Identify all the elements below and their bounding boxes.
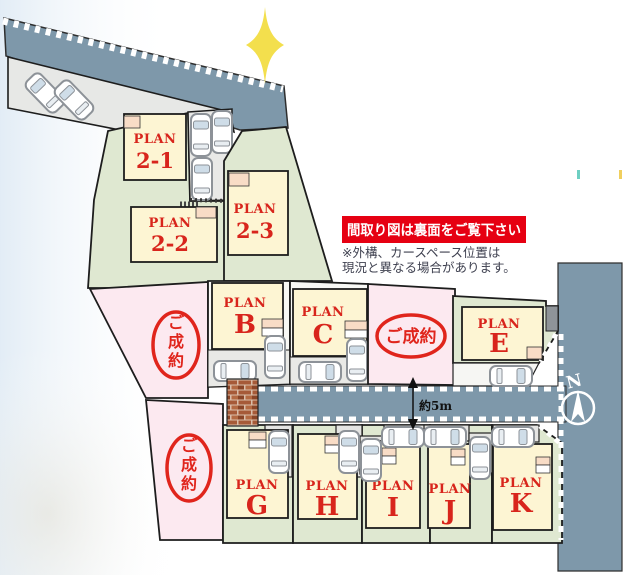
- car-icon: [214, 361, 256, 381]
- entrance-box: [527, 347, 542, 359]
- car-icon: [361, 439, 381, 481]
- building-plan-2-1: PLAN 2-1: [124, 114, 186, 180]
- car-icon: [470, 437, 490, 479]
- entrance-box: [262, 319, 283, 328]
- entrance-box: [196, 207, 216, 218]
- note-line-1: ※外構、カースペース位置は: [342, 245, 500, 260]
- horizontal-road: [256, 386, 566, 422]
- label-plan-c: PLAN: [302, 305, 345, 320]
- label-id-g: G: [246, 491, 268, 521]
- car-icon: [212, 111, 232, 153]
- building-plan-k: PLAN K: [493, 444, 552, 530]
- label-id-k: K: [510, 489, 534, 519]
- label-plan-j: PLAN: [429, 482, 472, 497]
- entrance-box: [536, 465, 550, 473]
- label-id-i: I: [387, 493, 399, 523]
- sold-lot-3: ご成約: [146, 400, 223, 540]
- car-icon: [269, 431, 289, 473]
- car-icon: [492, 427, 534, 447]
- lot-plan-c: PLAN C: [290, 281, 368, 384]
- label-id-j: J: [442, 496, 456, 526]
- entrance-box: [382, 456, 396, 464]
- note-line-2: 現況と異なる場合があります。: [342, 260, 516, 275]
- car-icon: [347, 339, 367, 381]
- entrance-box: [124, 116, 140, 128]
- label-plan-b: PLAN: [224, 296, 267, 311]
- label-plan-2-2: PLAN: [149, 216, 192, 231]
- lot-plan-b: PLAN B: [208, 281, 290, 387]
- stray-mark-teal: [577, 170, 580, 179]
- label-plan-2-1: PLAN: [134, 132, 177, 147]
- banner-text: 間取り図は裏面をご覧下さい: [347, 222, 521, 239]
- entrance-box: [249, 432, 266, 440]
- entrance-box: [451, 449, 465, 457]
- sold-stamp-2: ご成約: [386, 326, 437, 347]
- site-plan-drawing: PLAN 2-1 PLAN 2-2 PLAN 2-3 ご成約 PLAN B: [0, 0, 640, 575]
- label-id-2-1: 2-1: [136, 148, 174, 173]
- sold-stamp-1: ご成約: [168, 313, 184, 370]
- car-icon: [424, 427, 466, 447]
- car-icon: [265, 336, 285, 378]
- lot-plan-e: PLAN E: [453, 296, 558, 386]
- label-id-2-3: 2-3: [236, 218, 274, 243]
- banner: 間取り図は裏面をご覧下さい: [342, 216, 526, 243]
- entrance-box: [345, 330, 367, 338]
- sold-stamp-3: ご成約: [181, 436, 197, 493]
- road-width-label: 約5m: [419, 398, 452, 413]
- entrance-box: [229, 173, 249, 186]
- entrance-box: [451, 457, 465, 465]
- building-plan-j: PLAN J: [428, 444, 471, 528]
- label-id-2-2: 2-2: [151, 231, 189, 256]
- car-icon: [299, 362, 341, 382]
- site-plan-page: PLAN 2-1 PLAN 2-2 PLAN 2-3 ご成約 PLAN B: [0, 0, 640, 575]
- car-icon: [191, 114, 211, 156]
- label-id-h: H: [315, 492, 340, 522]
- car-icon: [339, 431, 359, 473]
- entrance-box: [345, 321, 367, 330]
- entrance-box: [536, 457, 550, 465]
- entrance-box: [382, 448, 396, 456]
- building-plan-2-2: PLAN 2-2: [131, 204, 217, 262]
- sparkle-icon: [246, 7, 284, 84]
- stray-mark-yellow: [619, 170, 622, 179]
- car-icon: [192, 158, 212, 200]
- label-id-b: B: [234, 310, 256, 340]
- label-id-c: C: [313, 320, 334, 350]
- car-icon: [490, 366, 532, 386]
- label-plan-2-3: PLAN: [234, 202, 277, 217]
- entrance-box: [262, 328, 283, 336]
- brick-path: [227, 379, 258, 426]
- sold-lot-2: ご成約: [368, 284, 455, 385]
- building-plan-2-3: PLAN 2-3: [228, 171, 288, 255]
- utility-box: [546, 306, 558, 331]
- entrance-box: [249, 440, 266, 448]
- car-icon: [382, 427, 424, 447]
- label-id-e: E: [489, 329, 509, 359]
